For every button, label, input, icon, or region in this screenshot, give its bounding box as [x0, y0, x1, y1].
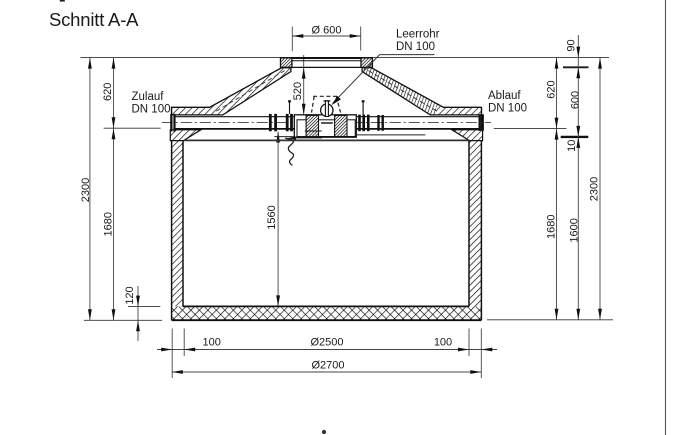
svg-text:10: 10 [566, 140, 578, 152]
svg-text:DN 100: DN 100 [132, 103, 171, 115]
svg-text:Schnitt A-A: Schnitt A-A [49, 9, 139, 30]
svg-text:DN 100: DN 100 [396, 41, 435, 53]
svg-text:Ø2500: Ø2500 [310, 337, 343, 349]
svg-text:120: 120 [124, 286, 136, 304]
svg-text:100: 100 [203, 337, 221, 349]
svg-text:100: 100 [434, 337, 452, 349]
svg-text:90: 90 [566, 39, 578, 51]
svg-text:1680: 1680 [103, 212, 115, 236]
svg-text:Leerrohr: Leerrohr [396, 28, 440, 40]
svg-text:DN 100: DN 100 [488, 102, 527, 114]
svg-text:Ø2700: Ø2700 [311, 359, 344, 371]
svg-text:Ø 600: Ø 600 [312, 25, 342, 37]
svg-text:1680: 1680 [546, 214, 558, 238]
svg-text:2300: 2300 [80, 178, 92, 202]
svg-text:Ablauf: Ablauf [488, 90, 521, 102]
svg-text:Zulauf: Zulauf [132, 91, 165, 103]
svg-text:2300: 2300 [589, 177, 601, 201]
svg-text:520: 520 [292, 82, 304, 100]
svg-text:1560: 1560 [266, 205, 278, 229]
svg-text:620: 620 [546, 80, 558, 98]
svg-text:1600: 1600 [569, 218, 581, 242]
svg-text:620: 620 [102, 83, 114, 101]
svg-text:600: 600 [570, 91, 582, 109]
